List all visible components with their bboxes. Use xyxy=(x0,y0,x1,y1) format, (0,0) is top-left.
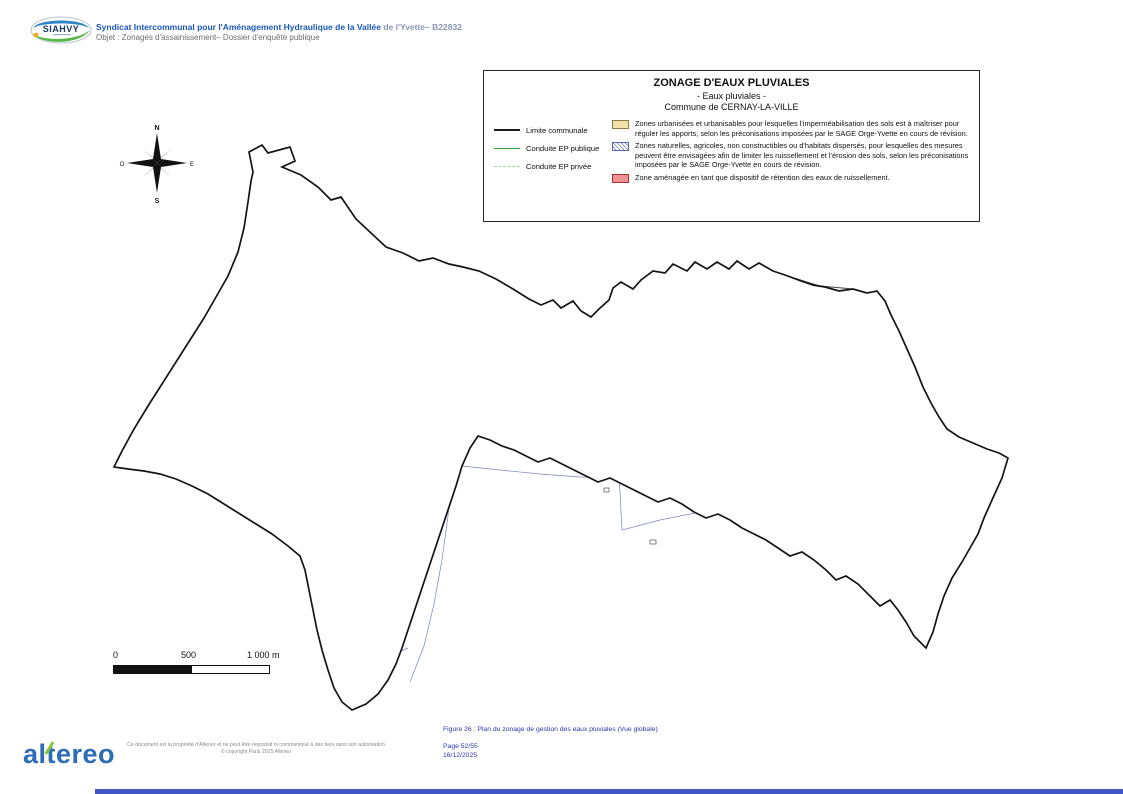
retention-zone-text: Zone aménagée en tant que dispositif de … xyxy=(635,173,890,183)
legend-item-ep-publique: Conduite EP publique xyxy=(494,139,612,157)
org-title: Syndicat Intercommunal pour l'Aménagemen… xyxy=(96,22,462,32)
compass-e: E xyxy=(190,162,194,168)
copyright-text: Ce document est la propriété d'Altereo e… xyxy=(112,742,400,756)
urban-swatch xyxy=(612,120,629,129)
page-number: Page 52/55 xyxy=(443,743,478,750)
ep-publique-line-swatch xyxy=(494,148,520,149)
compass-s: S xyxy=(155,198,160,205)
urban-zone-text: Zones urbanisées et urbanisables pour le… xyxy=(635,119,971,138)
ep-privee-label: Conduite EP privée xyxy=(526,162,591,171)
compass-o: O xyxy=(120,162,125,168)
limite-line-swatch xyxy=(494,129,520,131)
legend-commune: Commune de CERNAY-LA-VILLE xyxy=(484,102,979,112)
legend-item-retention: Zone aménagée en tant que dispositif de … xyxy=(612,173,971,183)
legend-subtitle: - Eaux pluviales - xyxy=(484,91,979,101)
siahvy-logo-text: SIAHVY xyxy=(43,24,80,34)
altereo-logo: altereo xyxy=(23,739,115,770)
siahvy-logo: SIAHVY xyxy=(29,14,93,48)
scale-bar-graphic xyxy=(113,665,270,674)
compass-rose: N S E O xyxy=(120,125,194,205)
limite-label: Limite communale xyxy=(526,126,588,135)
org-title-suffix: de l'Yvette– B22832 xyxy=(383,22,462,32)
ep-publique-label: Conduite EP publique xyxy=(526,144,599,153)
legend-line-items: Limite communale Conduite EP publique Co… xyxy=(494,119,612,186)
copyright-line2: © copyright Paris 2025 Altereo xyxy=(112,749,400,756)
scale-label-0: 0 xyxy=(113,650,118,660)
page-footer: altereo Ce document est la propriété d'A… xyxy=(0,715,1123,794)
natural-hatch-swatch xyxy=(612,142,629,151)
scale-bar: 0 500 1 000 m xyxy=(113,650,283,674)
legend-box: ZONAGE D'EAUX PLUVIALES - Eaux pluviales… xyxy=(483,70,980,222)
legend-item-limite: Limite communale xyxy=(494,121,612,139)
bottom-blue-bar xyxy=(95,789,1123,794)
natural-zone-text: Zones naturelles, agricoles, non constru… xyxy=(635,141,971,170)
compass-n: N xyxy=(154,125,159,132)
ep-privee-line-swatch xyxy=(494,166,520,167)
page-date: 16/12/2025 xyxy=(443,752,477,759)
retention-swatch xyxy=(612,174,629,183)
altereo-logo-text: altereo xyxy=(23,739,115,769)
legend-title: ZONAGE D'EAUX PLUVIALES xyxy=(484,77,979,89)
subject-line: Objet : Zonages d'assainissement– Dossie… xyxy=(96,33,320,42)
limite-communale xyxy=(114,145,1008,710)
figure-caption: Figure 26 : Plan du zonage de gestion de… xyxy=(443,726,658,733)
scale-label-1000: 1 000 m xyxy=(247,650,280,660)
legend-item-natural: Zones naturelles, agricoles, non constru… xyxy=(612,141,971,170)
page-header: SIAHVY Syndicat Intercommunal pour l'Amé… xyxy=(0,0,1123,60)
legend-item-urban: Zones urbanisées et urbanisables pour le… xyxy=(612,119,971,138)
legend-zone-items: Zones urbanisées et urbanisables pour le… xyxy=(612,119,971,186)
scale-label-500: 500 xyxy=(181,650,196,660)
copyright-line1: Ce document est la propriété d'Altereo e… xyxy=(112,742,400,749)
org-title-main: Syndicat Intercommunal pour l'Aménagemen… xyxy=(96,22,383,32)
legend-item-ep-privee: Conduite EP privée xyxy=(494,157,612,175)
